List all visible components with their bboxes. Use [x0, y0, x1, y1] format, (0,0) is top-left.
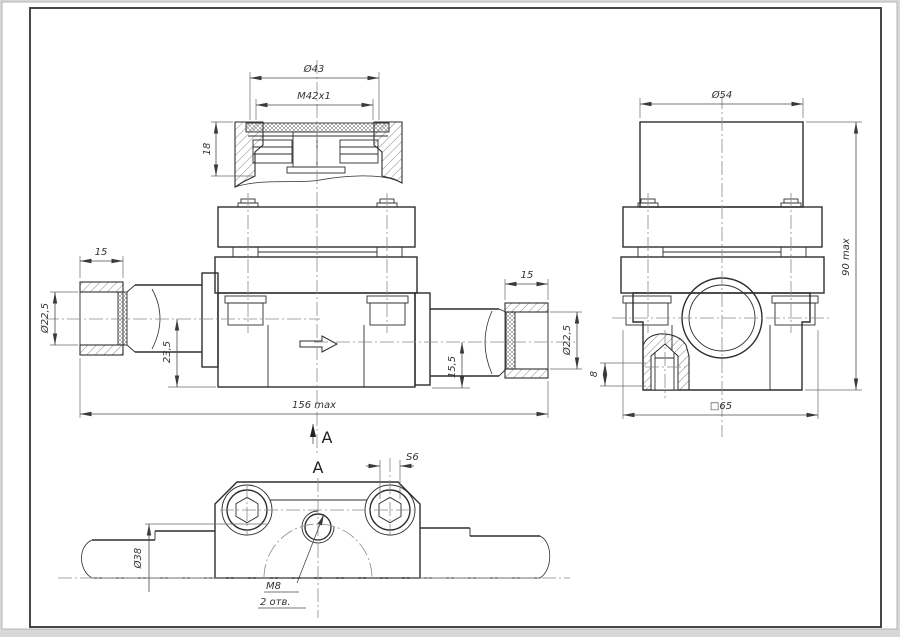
- dim-boss-height: 8: [589, 371, 600, 377]
- dim-hex-across-flats: S6: [406, 452, 419, 463]
- dim-left-bore-diameter: Ø22,5: [39, 303, 51, 334]
- right-gasket: [506, 312, 515, 369]
- left-gasket: [118, 292, 127, 345]
- dim-overall-height: 90 max: [841, 238, 852, 276]
- drawing-page: Ø43 M42x1 18 15 Ø22,5 23,5 15 15,5 Ø22,5…: [0, 0, 900, 637]
- dim-cap-thread: M42x1: [297, 91, 331, 102]
- dim-mounting-hole-count: 2 отв.: [260, 597, 291, 608]
- dim-left-fitting-length: 15: [95, 247, 108, 258]
- dim-cap-diameter: Ø54: [711, 89, 733, 101]
- dim-body-square: □65: [710, 401, 732, 412]
- dim-cap-height: 18: [202, 143, 213, 156]
- paper-sheet: [2, 2, 897, 629]
- dim-mounting-thread: M8: [266, 581, 281, 592]
- section-view-label: A: [322, 428, 333, 447]
- view-a-label: A: [313, 458, 324, 477]
- cap-knurl-band: [246, 123, 389, 132]
- technical-drawing-canvas: Ø43 M42x1 18 15 Ø22,5 23,5 15 15,5 Ø22,5…: [0, 0, 900, 637]
- dim-left-axis-offset: 23,5: [162, 341, 173, 363]
- dim-right-axis-offset: 15,5: [447, 356, 458, 378]
- dim-cap-outer-diameter: Ø43: [303, 63, 325, 75]
- dim-right-fitting-length: 15: [521, 270, 534, 281]
- dim-right-bore-diameter: Ø22,5: [561, 325, 573, 356]
- dim-overall-length: 156 max: [292, 400, 336, 411]
- dim-body-diameter: Ø38: [132, 548, 144, 570]
